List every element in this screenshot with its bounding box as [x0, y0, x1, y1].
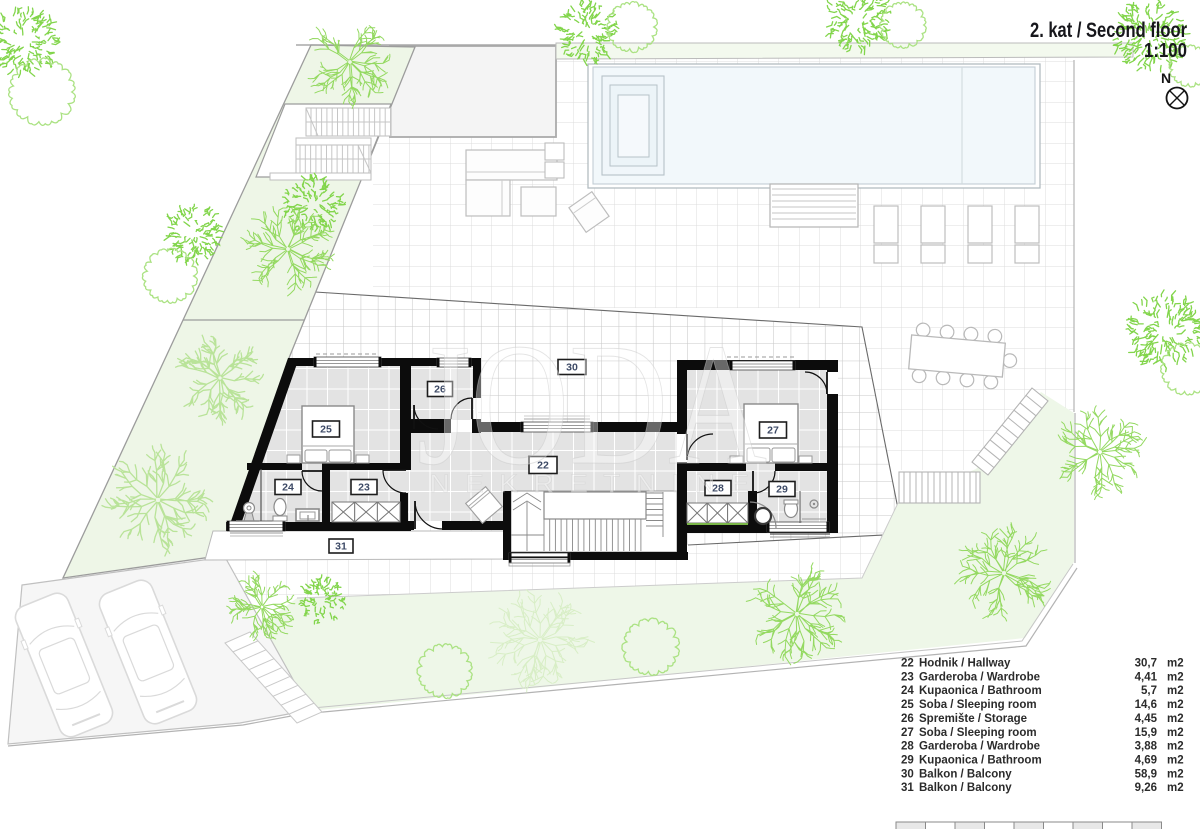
svg-text:m2: m2: [1167, 755, 1184, 767]
svg-text:26: 26: [901, 713, 914, 725]
svg-text:25: 25: [320, 424, 332, 436]
svg-text:Spremište / Storage: Spremište / Storage: [919, 713, 1027, 725]
svg-text:Hodnik / Hallway: Hodnik / Hallway: [919, 658, 1011, 670]
svg-text:Garderoba / Wardrobe: Garderoba / Wardrobe: [919, 671, 1040, 683]
svg-text:14,6: 14,6: [1135, 699, 1157, 711]
svg-text:30: 30: [901, 768, 914, 780]
svg-text:m2: m2: [1167, 658, 1184, 670]
svg-text:m2: m2: [1167, 685, 1184, 697]
svg-text:1:100: 1:100: [1144, 40, 1187, 62]
svg-text:24: 24: [901, 685, 914, 697]
svg-text:m2: m2: [1167, 741, 1184, 753]
svg-text:22: 22: [901, 658, 914, 670]
svg-text:4,45: 4,45: [1135, 713, 1158, 725]
svg-text:Balkon / Balcony: Balkon / Balcony: [919, 782, 1012, 794]
svg-text:15,9: 15,9: [1135, 727, 1157, 739]
svg-text:23: 23: [901, 671, 914, 683]
svg-text:m2: m2: [1167, 713, 1184, 725]
svg-text:Soba / Sleeping room: Soba / Sleeping room: [919, 727, 1037, 739]
svg-text:Soba / Sleeping room: Soba / Sleeping room: [919, 699, 1037, 711]
svg-text:Garderoba / Wardrobe: Garderoba / Wardrobe: [919, 741, 1040, 753]
svg-text:NEKRETNINE: NEKRETNINE: [430, 470, 765, 498]
svg-text:24: 24: [282, 482, 294, 494]
svg-text:27: 27: [901, 727, 914, 739]
svg-text:23: 23: [358, 482, 370, 494]
svg-text:2. kat / Second floor: 2. kat / Second floor: [1030, 19, 1187, 42]
svg-text:25: 25: [901, 699, 914, 711]
svg-text:N: N: [1161, 70, 1171, 86]
svg-text:9,26: 9,26: [1135, 782, 1157, 794]
svg-text:29: 29: [776, 484, 788, 496]
svg-text:31: 31: [901, 782, 914, 794]
svg-text:Balkon / Balcony: Balkon / Balcony: [919, 768, 1012, 780]
svg-text:m2: m2: [1167, 671, 1184, 683]
svg-text:m2: m2: [1167, 782, 1184, 794]
svg-text:30,7: 30,7: [1135, 658, 1157, 670]
svg-text:4,41: 4,41: [1135, 671, 1158, 683]
svg-text:29: 29: [901, 755, 914, 767]
svg-text:m2: m2: [1167, 699, 1184, 711]
svg-text:28: 28: [901, 741, 914, 753]
svg-text:4,69: 4,69: [1135, 755, 1157, 767]
svg-text:m2: m2: [1167, 727, 1184, 739]
svg-text:3,88: 3,88: [1135, 741, 1158, 753]
svg-text:Kupaonica / Bathroom: Kupaonica / Bathroom: [919, 755, 1042, 767]
svg-text:m2: m2: [1167, 768, 1184, 780]
svg-text:Kupaonica / Bathroom: Kupaonica / Bathroom: [919, 685, 1042, 697]
svg-text:58,9: 58,9: [1135, 768, 1157, 780]
svg-text:31: 31: [335, 541, 347, 553]
svg-text:5,7: 5,7: [1141, 685, 1157, 697]
svg-text:27: 27: [767, 425, 779, 437]
